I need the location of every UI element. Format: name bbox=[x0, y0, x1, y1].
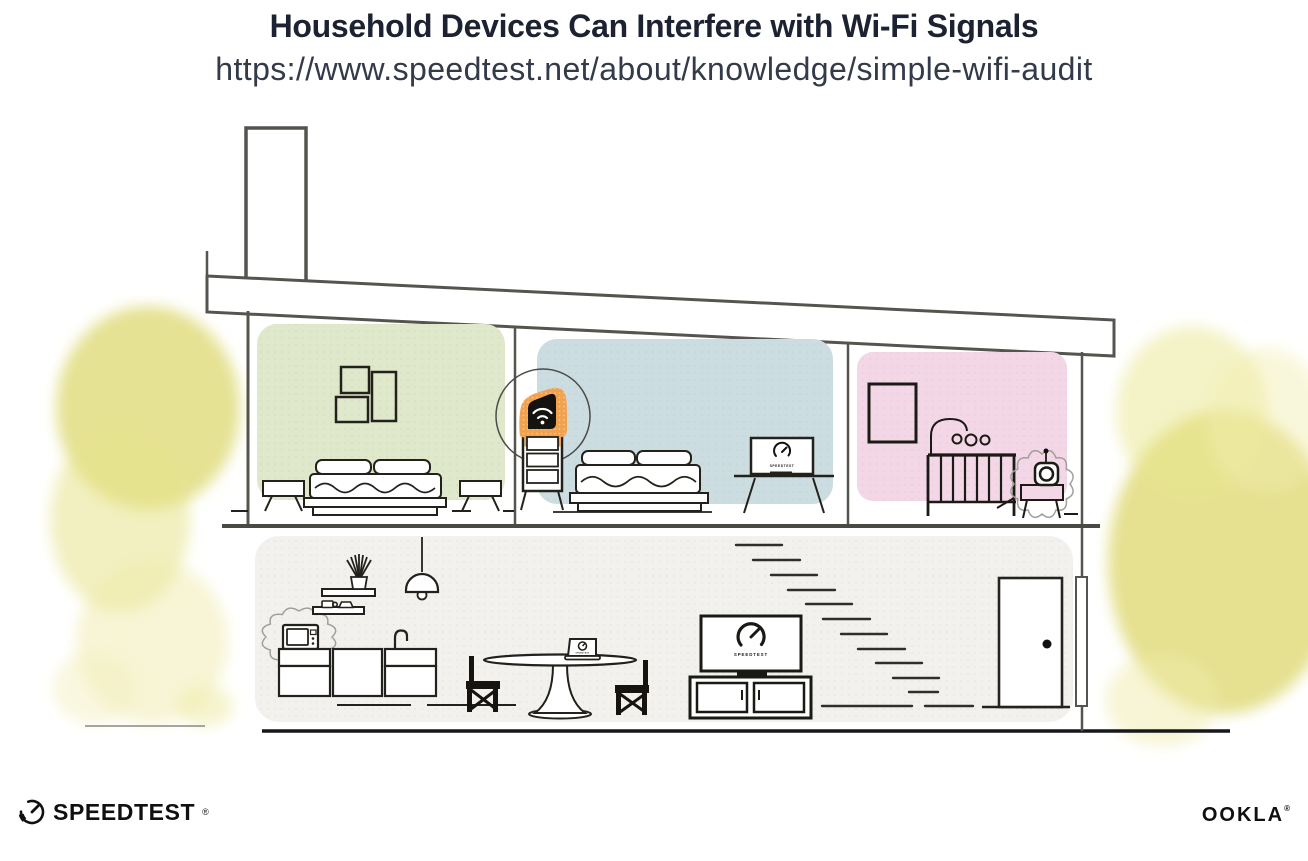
registered-mark: ® bbox=[1284, 804, 1292, 813]
kitchen-cabinets bbox=[279, 649, 436, 696]
bed bbox=[570, 451, 708, 511]
tv-screen-label: SPEEDTEST bbox=[734, 652, 768, 657]
nightstand-right bbox=[460, 481, 501, 511]
door-knob bbox=[1043, 640, 1052, 649]
microwave-icon bbox=[283, 625, 318, 649]
downspout bbox=[1076, 577, 1087, 706]
house-cutaway-illustration: SPEEDTEST bbox=[0, 0, 1308, 861]
left-bush bbox=[50, 306, 240, 726]
speedtest-logo: SPEEDTEST® bbox=[18, 798, 209, 826]
bed bbox=[304, 460, 446, 515]
tv-stand bbox=[737, 672, 767, 676]
speedtest-wordmark: SPEEDTEST bbox=[53, 799, 195, 826]
laptop-icon: SPEEDTEST bbox=[565, 639, 600, 660]
right-bush bbox=[1106, 326, 1308, 746]
wifi-interference-infographic: Household Devices Can Interfere with Wi-… bbox=[0, 0, 1308, 861]
chimney bbox=[246, 128, 306, 282]
living-tv: SPEEDTEST bbox=[690, 616, 811, 718]
speedtest-gauge-icon bbox=[18, 798, 46, 826]
nightstand-left bbox=[263, 481, 304, 511]
ookla-wordmark: OOKLA bbox=[1202, 804, 1284, 826]
media-console bbox=[690, 677, 811, 718]
monitor-screen-label: SPEEDTEST bbox=[770, 464, 795, 468]
registered-mark: ® bbox=[202, 807, 209, 817]
laptop-screen-label: SPEEDTEST bbox=[576, 653, 590, 655]
ookla-logo: OOKLA® bbox=[1202, 804, 1292, 827]
bedroom-monitor: SPEEDTEST bbox=[751, 438, 813, 476]
